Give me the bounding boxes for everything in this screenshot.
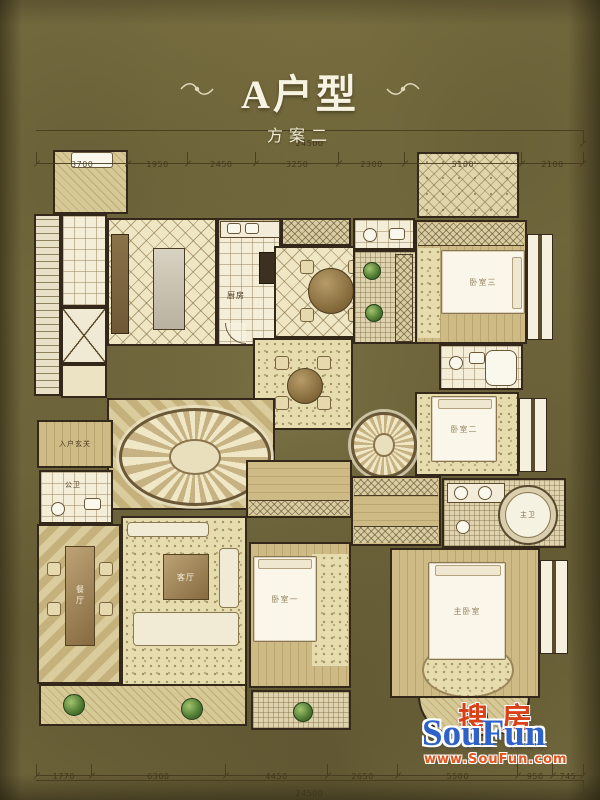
chair [47, 562, 61, 576]
bed: 卧室一 [253, 556, 317, 642]
wardrobe-cabinet [354, 526, 438, 543]
carpet [418, 248, 440, 338]
room-label-bedroom3: 卧室三 [470, 277, 497, 288]
kitchen-cabinet [111, 234, 129, 334]
bay-window [519, 398, 547, 472]
dining-table: 餐厅 [65, 546, 95, 646]
wardrobe-cabinet [395, 254, 413, 342]
room-label-kitchen: 厨房 [227, 290, 245, 301]
bay-window [527, 234, 553, 340]
dim-value: 2300 [360, 160, 382, 169]
kitchen-island [153, 248, 185, 330]
round-bathtub: 主卫 [498, 485, 558, 545]
plant-icon [365, 304, 383, 322]
dining-room: 餐厅 [37, 524, 121, 684]
dim-value: 2100 [541, 160, 563, 169]
dim-bottom-total: 24500 [36, 780, 584, 793]
bed: 主卧室 [428, 562, 506, 660]
toilet-icon [456, 520, 470, 534]
medallion-hub [169, 439, 222, 476]
sink-icon [245, 223, 259, 234]
service-corridor [353, 250, 417, 344]
watermark-logo: SouFun [422, 712, 545, 755]
stairwell [34, 214, 61, 396]
bedroom1-balcony [251, 690, 351, 730]
chair [275, 356, 289, 370]
plant-icon [293, 702, 313, 722]
tv-cabinet [127, 522, 209, 537]
dim-top-segments: 3700 1950 2450 3250 2300 5100 2100 [36, 152, 584, 164]
pantry-cabinets [281, 218, 351, 246]
bedroom1: 卧室一 [249, 542, 351, 688]
dim-value: 5100 [452, 160, 474, 169]
sofa [219, 548, 239, 608]
medallion-hub [373, 433, 395, 457]
bed: 卧室三 [441, 250, 525, 314]
room-label-entry-foyer: 入户玄关 [59, 439, 91, 449]
page-subtitle: 方案二 [0, 122, 600, 146]
elevator-lobby [61, 364, 107, 398]
room-label-master-bedroom: 主卧室 [454, 606, 481, 617]
coffee-table: 客厅 [163, 554, 209, 600]
header: A户型 方案二 [0, 62, 600, 146]
door-arc [225, 323, 246, 344]
dressing-room [351, 476, 441, 546]
kitchen: 厨房 [217, 218, 281, 346]
pillow [438, 399, 492, 409]
wardrobe-cabinet [249, 500, 349, 515]
pillow [258, 559, 312, 569]
sofa [133, 612, 239, 646]
master-bedroom: 主卧室 [390, 548, 540, 698]
sink-icon [84, 498, 101, 510]
toilet-icon [51, 502, 65, 516]
corridor [246, 460, 352, 518]
room-label-master-bath: 主卫 [520, 510, 536, 520]
entry-lobby [61, 214, 107, 307]
bathtub-icon [485, 350, 517, 386]
chair [317, 356, 331, 370]
entry-foyer: 入户玄关 [37, 420, 113, 468]
sink-icon [227, 223, 241, 234]
dim-value: 3250 [286, 160, 308, 169]
living-room: 客厅 [121, 516, 247, 688]
chair [99, 602, 113, 616]
west-kitchen [107, 218, 217, 346]
round-table [287, 368, 323, 404]
pillow [512, 257, 522, 309]
pillow [435, 565, 501, 576]
chair [317, 396, 331, 410]
room-label-bedroom2: 卧室二 [451, 424, 478, 435]
wardrobe-cabinet [354, 479, 438, 496]
utility-bath [353, 218, 415, 250]
terrace [39, 684, 247, 726]
master-bath: 主卫 [442, 478, 566, 548]
chair [99, 562, 113, 576]
soufun-watermark: 搜房 SouFun www.SouFun.com [420, 696, 590, 768]
bay-window [540, 560, 568, 654]
chair [300, 260, 314, 274]
dim-value: 24500 [296, 789, 324, 798]
guest-bath: 公卫 [39, 470, 113, 524]
chair [47, 602, 61, 616]
dim-value: 2450 [210, 160, 232, 169]
sink-icon [478, 486, 492, 500]
plant-icon [63, 694, 85, 716]
sink-icon [389, 228, 405, 240]
closet-band [418, 223, 524, 246]
room-label-dining: 餐厅 [75, 585, 86, 607]
toilet-icon [363, 228, 377, 242]
flourish-left-icon [179, 81, 215, 101]
page-title: A户型 [241, 62, 359, 120]
plant-icon [181, 698, 203, 720]
room-label-guest-bath: 公卫 [65, 480, 81, 490]
dim-value: 3700 [71, 160, 93, 169]
carpet [312, 554, 348, 666]
bedroom2: 卧室二 [415, 392, 519, 476]
watermark-url: www.SouFun.com [424, 752, 568, 767]
elevator [61, 307, 107, 364]
flourish-right-icon [385, 81, 421, 101]
bed: 卧室二 [431, 396, 497, 462]
sink-icon [454, 486, 468, 500]
chair [275, 396, 289, 410]
room-label-bedroom1: 卧室一 [272, 594, 299, 605]
floor-medallion-small [351, 412, 417, 478]
dim-value: 1950 [146, 160, 168, 169]
toilet-icon [449, 356, 463, 370]
sink-icon [469, 352, 485, 364]
round-table [308, 268, 354, 314]
chair [300, 308, 314, 322]
plant-icon [363, 262, 381, 280]
bedroom3: 卧室三 [415, 220, 527, 344]
room-label-living: 客厅 [177, 572, 195, 583]
shared-bath [439, 344, 523, 390]
floor-plan: 厨房 卧室三 [33, 148, 585, 758]
